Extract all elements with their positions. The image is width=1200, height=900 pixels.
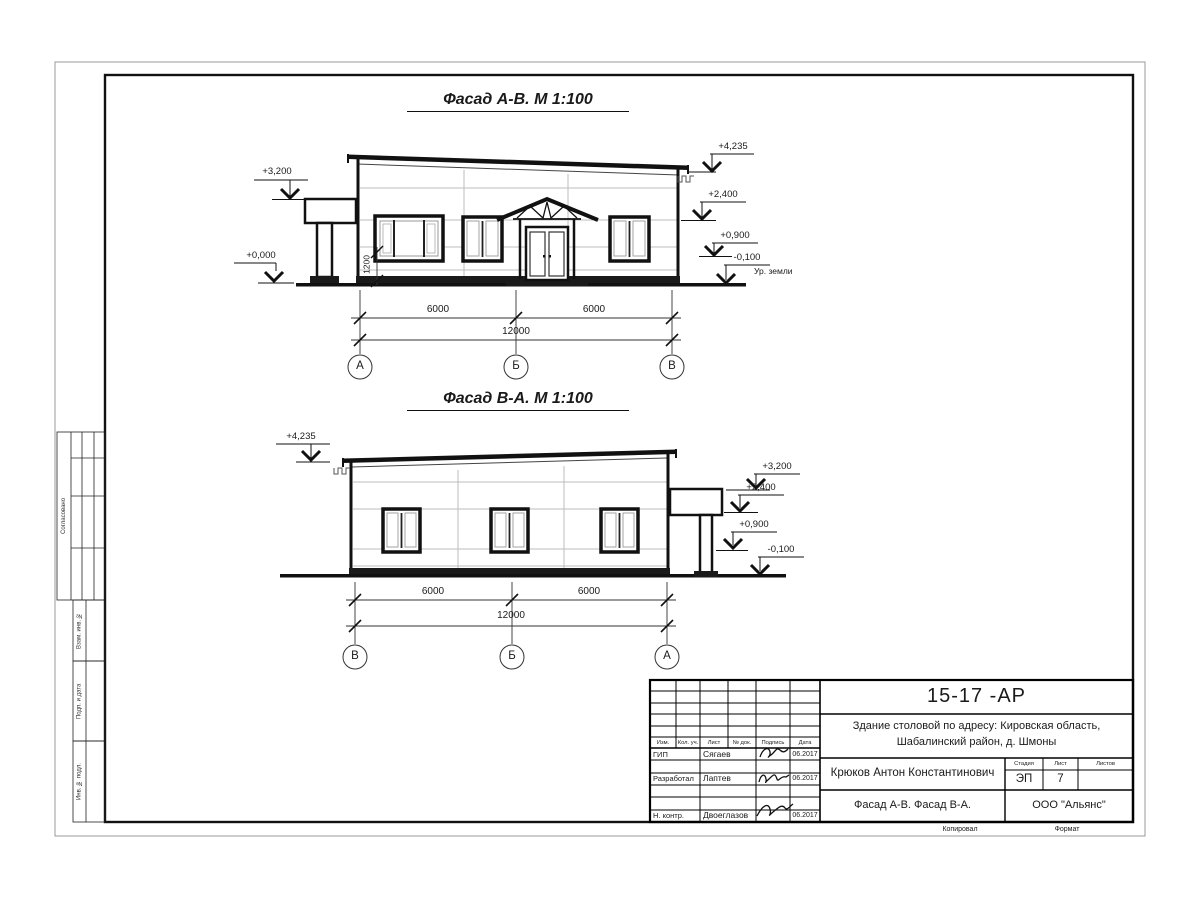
facade-ab-window-1 <box>375 216 443 261</box>
row-role: Н. контр. <box>653 812 698 820</box>
col-header-podpis: Подпись <box>756 740 790 746</box>
row-name: Лаптев <box>703 774 754 783</box>
row-role: ГИП <box>653 751 698 759</box>
axis-label: В <box>660 360 684 372</box>
stage-header: Стадия <box>1005 761 1043 767</box>
elevation-label: +3,200 <box>754 462 800 472</box>
dimension-label: 6000 <box>413 305 463 316</box>
elevation-label: -0,100 <box>724 253 770 263</box>
dimension-label: 6000 <box>564 587 614 598</box>
row-name: Сягаев <box>703 750 754 759</box>
facade-ab-title: Фасад А-В. М 1:100 <box>407 92 629 112</box>
dimension-label: 12000 <box>486 611 536 622</box>
row-date: 06.2017 <box>790 751 820 758</box>
facade-ab-window-3 <box>610 217 649 261</box>
dimension-label: 12000 <box>491 327 541 338</box>
axis-label: А <box>348 360 372 372</box>
format-label: Формат <box>1040 826 1094 833</box>
facade-va-window-2 <box>491 509 528 552</box>
dimension-label: 6000 <box>569 305 619 316</box>
project-name-line1: Здание столовой по адресу: Кировская обл… <box>824 721 1129 733</box>
author-name: Крюков Антон Константинович <box>822 767 1003 779</box>
col-header-kol: Кол. уч. <box>676 740 700 746</box>
doc-code: 15-17 -АР <box>822 686 1131 707</box>
elevation-label: +4,235 <box>710 142 756 152</box>
facade-ab-window-2 <box>463 217 502 261</box>
sill-dimension-label: 1200 <box>363 249 372 279</box>
col-header-list: Лист <box>700 740 728 746</box>
elevation-label: +4,235 <box>276 432 326 442</box>
strip-label-inv: Инв. № подл. <box>73 741 86 822</box>
sheet-header: Лист <box>1043 761 1078 767</box>
facade-va-window-3 <box>601 509 638 552</box>
elevation-label: +0,900 <box>712 231 758 241</box>
elevation-label: +3,200 <box>252 167 302 177</box>
stage-value: ЭП <box>1005 773 1043 785</box>
company-name: ООО "Альянс" <box>1005 800 1133 812</box>
copy-label: Копировал <box>930 826 990 833</box>
ground-level-label: Ур. земли <box>754 267 806 276</box>
facade-va-title: Фасад В-А. М 1:100 <box>407 391 629 411</box>
axis-label: А <box>655 650 679 662</box>
col-header-data: Дата <box>790 740 820 746</box>
row-date: 06.2017 <box>790 812 820 819</box>
elevation-label: +0,900 <box>731 520 777 530</box>
axis-label: Б <box>504 360 528 372</box>
drawing-title: Фасад А-В. Фасад В-А. <box>822 800 1003 812</box>
sheets-header: Листов <box>1078 761 1133 767</box>
strip-label-agreed: Согласовано <box>57 432 71 600</box>
facade-va-window-1 <box>383 509 420 552</box>
elevation-label: +2,400 <box>738 483 784 493</box>
axis-label: В <box>343 650 367 662</box>
strip-label-vzam: Взам. инв. № <box>73 600 86 661</box>
row-date: 06.2017 <box>790 775 820 782</box>
strip-label-podp: Подп. и дата <box>73 661 86 741</box>
sheet-number: 7 <box>1043 773 1078 785</box>
elevation-label: +0,000 <box>236 251 286 261</box>
project-name-line2: Шабалинский район, д. Шмоны <box>824 737 1129 749</box>
row-role: Разработал <box>653 775 698 783</box>
row-name: Двоеглазов <box>703 811 754 820</box>
col-header-ndok: № док. <box>728 740 756 746</box>
axis-label: Б <box>500 650 524 662</box>
elevation-label: +2,400 <box>700 190 746 200</box>
dimension-label: 6000 <box>408 587 458 598</box>
col-header-izm: Изм. <box>650 740 676 746</box>
elevation-label: -0,100 <box>758 545 804 555</box>
drawing-sheet: Фасад А-В. М 1:100 Фасад В-А. М 1:100 +3… <box>0 0 1200 900</box>
